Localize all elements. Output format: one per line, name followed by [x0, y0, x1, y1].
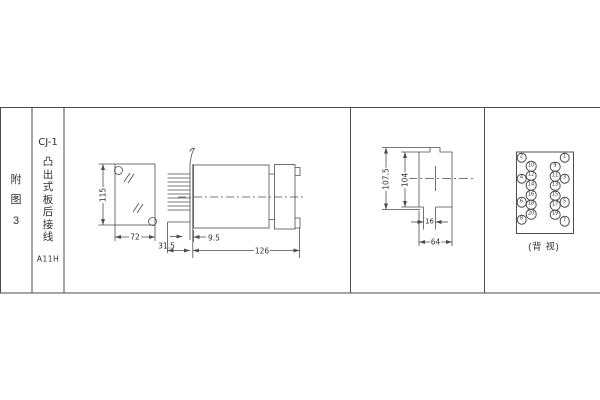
terminal-7: 7	[559, 216, 570, 227]
terminal-1: 1	[559, 152, 570, 163]
sheet-index-label: 附图3	[11, 170, 22, 231]
dim-16: 16	[424, 219, 435, 226]
model-label: CJ-1	[37, 138, 59, 148]
title-char: 式	[43, 181, 54, 194]
back-view-caption: (背 视)	[527, 243, 561, 252]
title-char: 线	[43, 231, 54, 244]
dim-126: 126	[254, 247, 270, 255]
dim-64: 64	[430, 238, 442, 246]
terminal-13: 13	[550, 180, 561, 191]
title-char: 接	[43, 219, 54, 232]
title-char: 凸	[43, 156, 54, 169]
terminal-5: 5	[559, 197, 570, 208]
dim-31-5: 31.5	[157, 242, 176, 250]
sheet-frame	[0, 108, 600, 294]
drawing-linework	[0, 0, 600, 400]
code-label: A11H	[36, 255, 60, 263]
dim-115: 115	[99, 186, 107, 202]
terminal-20: 20	[526, 209, 537, 220]
terminal-14: 14	[526, 180, 537, 191]
dim-72: 72	[129, 233, 141, 241]
rear-cutout-view	[382, 148, 474, 247]
dim-9-5: 9.5	[207, 234, 221, 242]
side-view	[168, 148, 304, 258]
drawing-sheet: 附图3 CJ-1 凸出式板后接线 A11H 115 72 31.5 9.5 12…	[0, 0, 600, 400]
terminal-2: 2	[516, 152, 527, 163]
index-char: 3	[11, 211, 22, 231]
terminal-3: 3	[559, 173, 570, 184]
index-char: 图	[11, 190, 22, 210]
dim-107-5: 107.5	[382, 167, 390, 190]
title-vertical-text: 凸出式板后接线	[43, 156, 54, 244]
index-char: 附	[11, 170, 22, 190]
front-view	[99, 164, 157, 241]
title-char: 板	[43, 194, 54, 207]
title-char: 后	[43, 206, 54, 219]
title-char: 出	[43, 169, 54, 182]
terminal-8: 8	[516, 214, 527, 225]
dim-104: 104	[401, 171, 409, 187]
